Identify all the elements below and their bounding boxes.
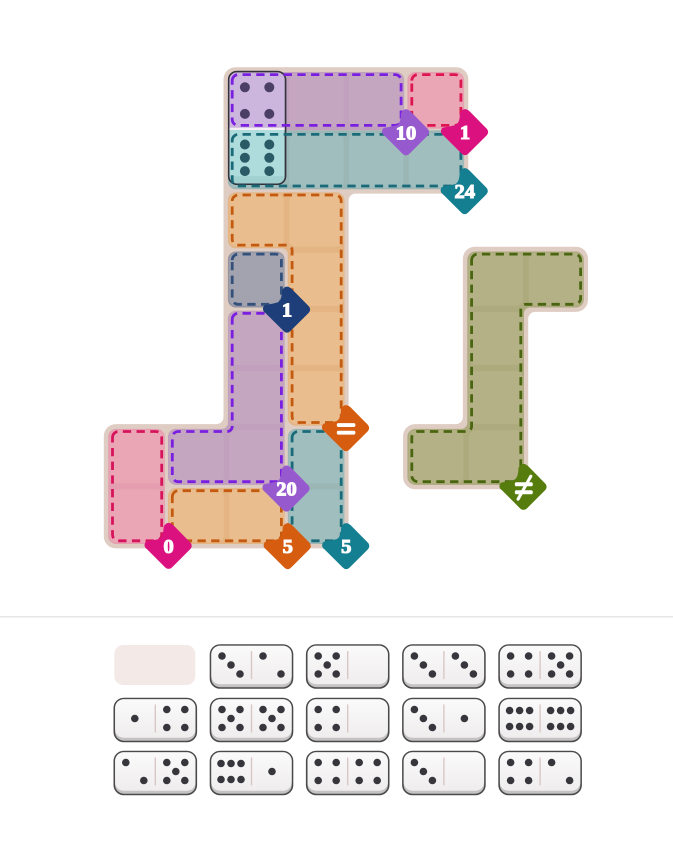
svg-text:1: 1 (282, 300, 292, 322)
svg-text:24: 24 (454, 181, 475, 203)
svg-text:5: 5 (341, 536, 351, 558)
svg-text:5: 5 (283, 536, 293, 558)
svg-text:0: 0 (163, 536, 173, 558)
svg-text:10: 10 (396, 122, 417, 144)
svg-text:20: 20 (276, 479, 297, 501)
svg-text:1: 1 (460, 122, 470, 144)
